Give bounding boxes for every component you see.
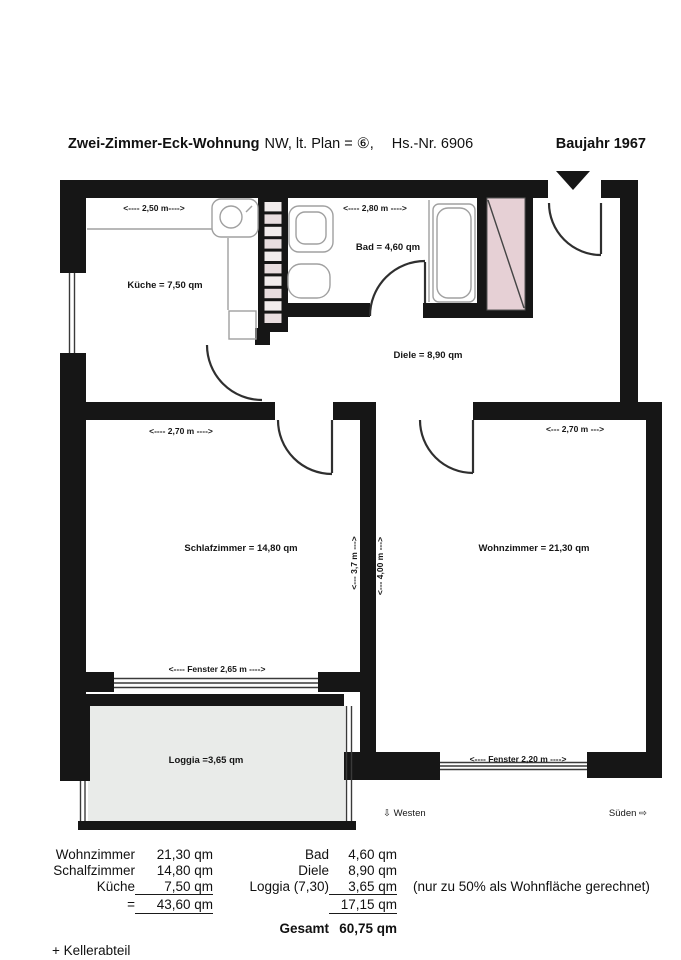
row-note: (nur zu 50% als Wohnfläche gerechnet) [397,879,650,896]
toilet [289,206,333,252]
wall-bedroom-window-right-block [318,672,376,692]
loggia-label: Loggia =3,65 qm [169,755,244,766]
livingroom-width-dimension: <--- 2,70 m ---> [546,424,604,434]
row-note [397,847,650,863]
row-value: 4,60 qm [329,847,397,863]
row-note [397,897,650,914]
kitchen-door-stub [255,328,270,345]
wall-loggia-top [86,694,344,706]
livingroom-depth-dimension: <--- 4,00 m ---> [375,537,385,595]
elevator-shaft [487,198,525,310]
wall-bath-bottom-left [280,303,370,317]
row-label: Loggia (7,30) [213,879,329,896]
row-note [397,863,650,879]
total-label: Gesamt [213,921,329,937]
row-value: 14,80 qm [135,863,213,879]
wall-mid-stub [333,402,376,420]
row-label: Schalfzimmer [40,863,135,879]
kitchen-window [70,273,75,353]
compass-south-label: Süden ⇨ [609,808,647,819]
wall-shaft-right [525,198,533,318]
livingroom-window-dimension: <---- Fenster 2,20 m ----> [470,754,567,764]
hall-label: Diele = 8,90 qm [394,350,463,361]
row-label [213,897,329,914]
entrance-door [549,203,601,255]
table-row: Küche 7,50 qm Loggia (7,30) 3,65 qm (nur… [40,879,650,896]
loggia-bottom-edge [78,821,356,830]
loggia-left-railing [81,781,86,821]
wall-mid-left [60,402,275,420]
bedroom-window-dimension: <---- Fenster 2,65 m ----> [169,664,266,674]
washbasin [288,264,330,298]
bedroom-window [114,679,318,688]
wall-top [60,180,548,198]
row-value: 8,90 qm [329,863,397,879]
bedroom-width-dimension: <---- 2,70 m ----> [149,426,213,436]
row-value: 43,60 qm [135,897,213,914]
row-value: 7,50 qm [135,879,213,896]
wall-top-right-block [601,180,638,198]
row-label: Diele [213,863,329,879]
bedroom-label: Schlafzimmer = 14,80 qm [184,543,297,554]
wall-wohnzimmer-top [473,402,662,420]
livingroom-label: Wohnzimmer = 21,30 qm [479,543,590,554]
row-label: Küche [40,879,135,896]
wall-livingroom-window-right-block [587,752,662,778]
total-value: 60,75 qm [329,921,397,937]
bedroom-door [278,420,332,474]
wall-left-upper [60,180,86,273]
kitchen-width-dimension: <---- 2,50 m----> [123,203,184,213]
livingroom-door [420,420,473,473]
kitchen-sink [212,199,258,237]
bath-width-dimension: <---- 2,80 m ----> [343,203,407,213]
area-summary-table: Wohnzimmer 21,30 qm Bad 4,60 qm Schalfzi… [40,847,650,959]
cellar-note: + Kellerabteil [52,943,650,959]
wall-right-wohnzimmer [646,402,662,778]
floorplan-page: Zwei-Zimmer-Eck-Wohnung NW, lt. Plan = ⑥… [0,0,681,960]
compass-west-label: ⇩ Westen [383,808,426,819]
bedroom-depth-dimension: <--- 3,7 m ---> [349,536,359,589]
table-sum-row: = 43,60 qm 17,15 qm [40,897,650,914]
table-row: Wohnzimmer 21,30 qm Bad 4,60 qm [40,847,650,863]
row-value: 3,65 qm [329,879,397,896]
wall-bath-right [477,198,487,303]
row-value: 21,30 qm [135,847,213,863]
table-row: Schalfzimmer 14,80 qm Diele 8,90 qm [40,863,650,879]
wall-bedroom-window-left-block [86,672,114,692]
kitchen-label: Küche = 7,50 qm [127,280,202,291]
row-label: = [40,897,135,914]
bath-door [370,261,425,316]
row-value: 17,15 qm [329,897,397,914]
wall-right-diele [620,198,638,420]
wall-livingroom-window-left-block [344,752,440,780]
wall-between-rooms [360,420,376,752]
wall-loggia-left-block [60,694,90,781]
entrance-marker-triangle [556,171,590,190]
floorplan-drawing: <---- 2,50 m----> <---- 2,80 m ----> Küc… [0,0,681,960]
bathtub [429,200,475,302]
bath-label: Bad = 4,60 qm [356,242,420,253]
kitchen-door [207,345,262,400]
row-label: Bad [213,847,329,863]
table-total-row: Gesamt 60,75 qm [40,921,650,937]
row-label: Wohnzimmer [40,847,135,863]
